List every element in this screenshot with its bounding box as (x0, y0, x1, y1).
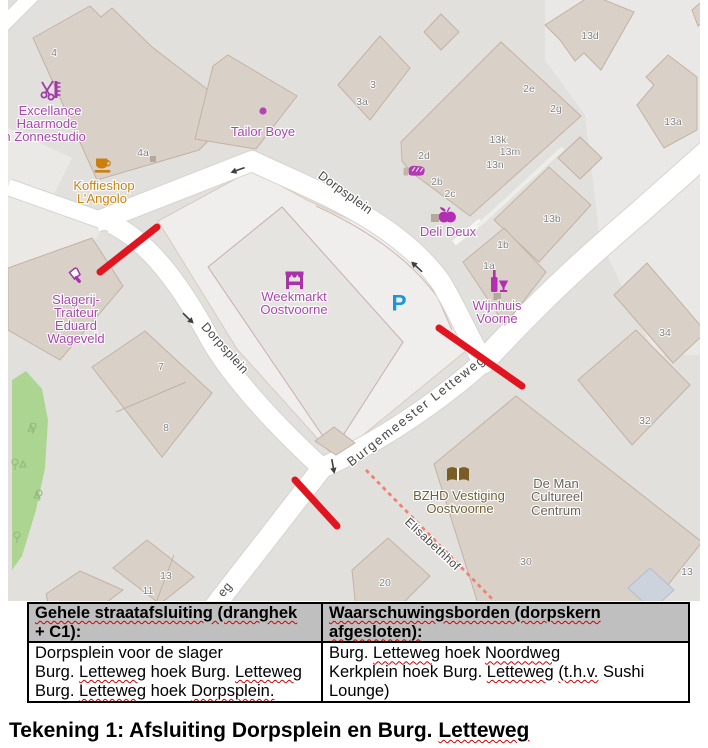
svg-text:P: P (391, 291, 406, 316)
svg-text:11: 11 (143, 585, 154, 597)
svg-text:L’Angolo: L’Angolo (77, 191, 127, 206)
svg-text:13d: 13d (581, 30, 599, 42)
svg-text:30: 30 (520, 556, 532, 568)
svg-text:13m: 13m (500, 146, 521, 158)
svg-text:Centrum: Centrum (531, 503, 581, 518)
svg-text:7: 7 (158, 361, 164, 373)
svg-text:Cultureel: Cultureel (531, 489, 583, 504)
svg-text:2c: 2c (444, 188, 455, 200)
svg-text:13a: 13a (664, 116, 682, 128)
svg-text:1b: 1b (497, 239, 509, 251)
svg-text:13b: 13b (543, 213, 561, 225)
svg-text:Voorne: Voorne (476, 311, 517, 326)
svg-text:20: 20 (379, 577, 391, 589)
svg-text:4: 4 (51, 47, 57, 59)
svg-text:3: 3 (370, 79, 376, 91)
svg-text:Oostvoorne: Oostvoorne (426, 501, 493, 516)
svg-text:2d: 2d (418, 150, 430, 162)
svg-text:1a: 1a (483, 260, 495, 272)
svg-text:2g: 2g (550, 103, 562, 115)
svg-text:34: 34 (659, 327, 671, 339)
svg-text:13n: 13n (486, 159, 504, 171)
svg-text:13k: 13k (490, 134, 508, 146)
svg-text:en Zonnestudio: en Zonnestudio (8, 129, 86, 144)
svg-text:Wageveld: Wageveld (47, 331, 104, 346)
svg-text:4a: 4a (137, 147, 149, 159)
svg-text:3a: 3a (356, 96, 368, 108)
svg-text:13: 13 (160, 570, 172, 582)
svg-text:8: 8 (163, 422, 169, 434)
svg-text:Tailor Boye: Tailor Boye (231, 124, 295, 139)
svg-text:Deli Deux: Deli Deux (420, 224, 477, 239)
svg-text:2e: 2e (523, 83, 535, 95)
svg-text:13: 13 (681, 566, 693, 578)
svg-text:Oostvoorne: Oostvoorne (260, 302, 327, 317)
svg-text:2b: 2b (431, 176, 443, 188)
svg-text:32: 32 (639, 415, 651, 427)
